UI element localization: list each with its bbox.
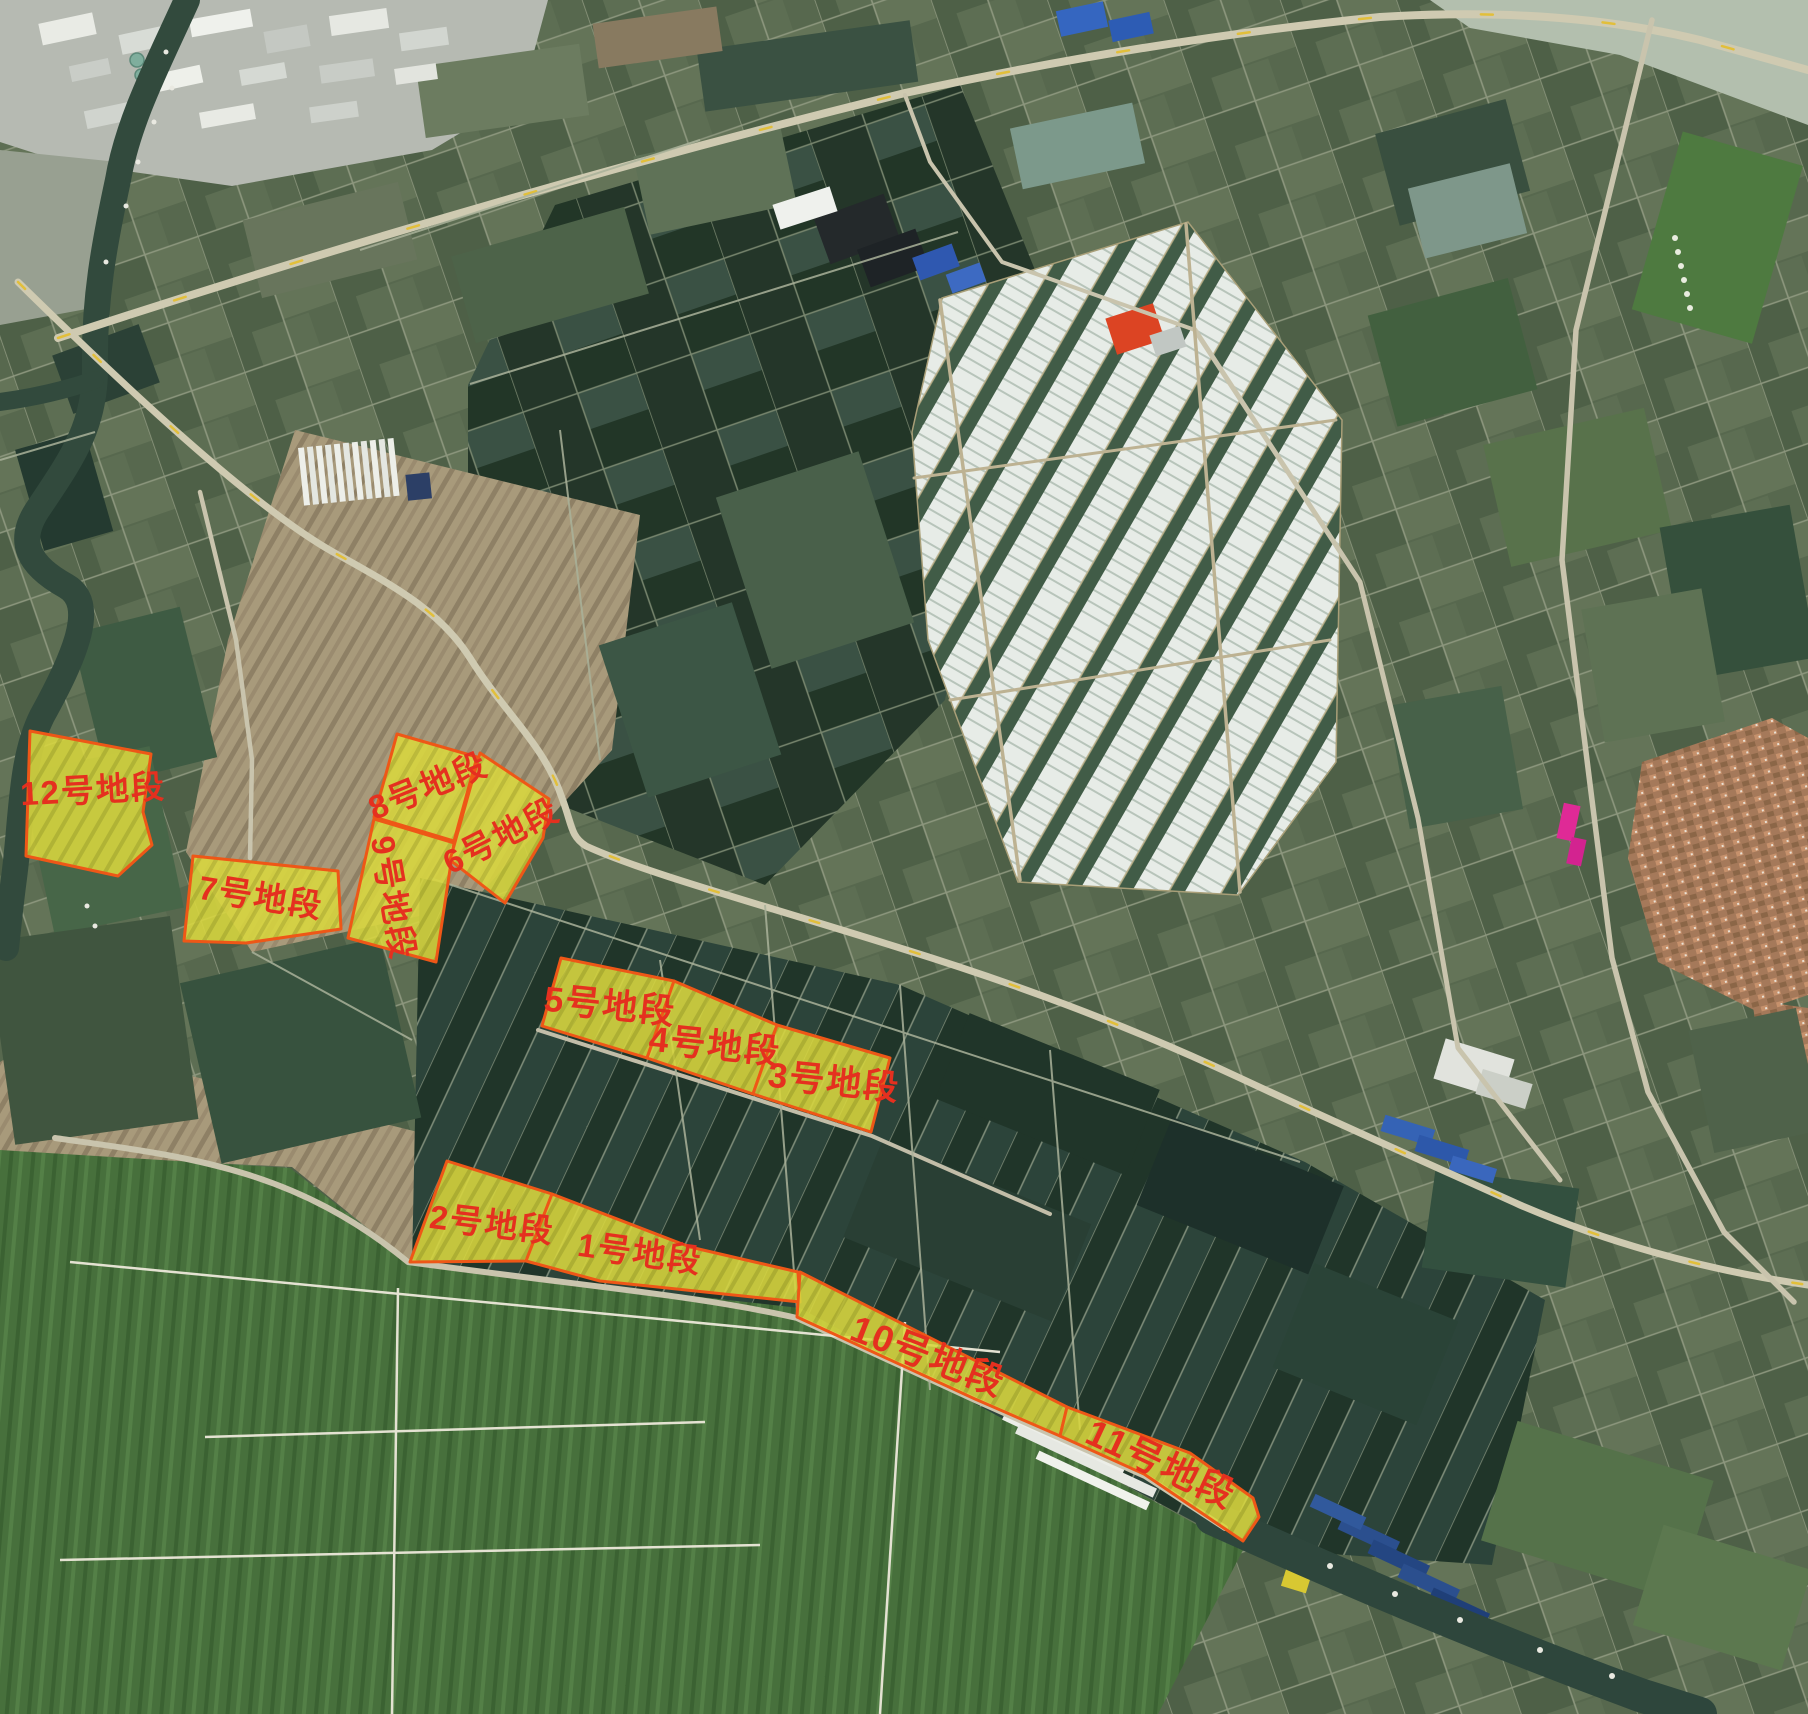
parcel-label-12: 12号地段	[19, 768, 166, 813]
satellite-map: 12号地段7号地段8号地段9号地段6号地段5号地段4号地段3号地段2号地段1号地…	[0, 0, 1808, 1714]
storage-tank	[130, 53, 144, 67]
navy-pond	[405, 472, 432, 500]
map-canvas: 12号地段7号地段8号地段9号地段6号地段5号地段4号地段3号地段2号地段1号地…	[0, 0, 1808, 1714]
